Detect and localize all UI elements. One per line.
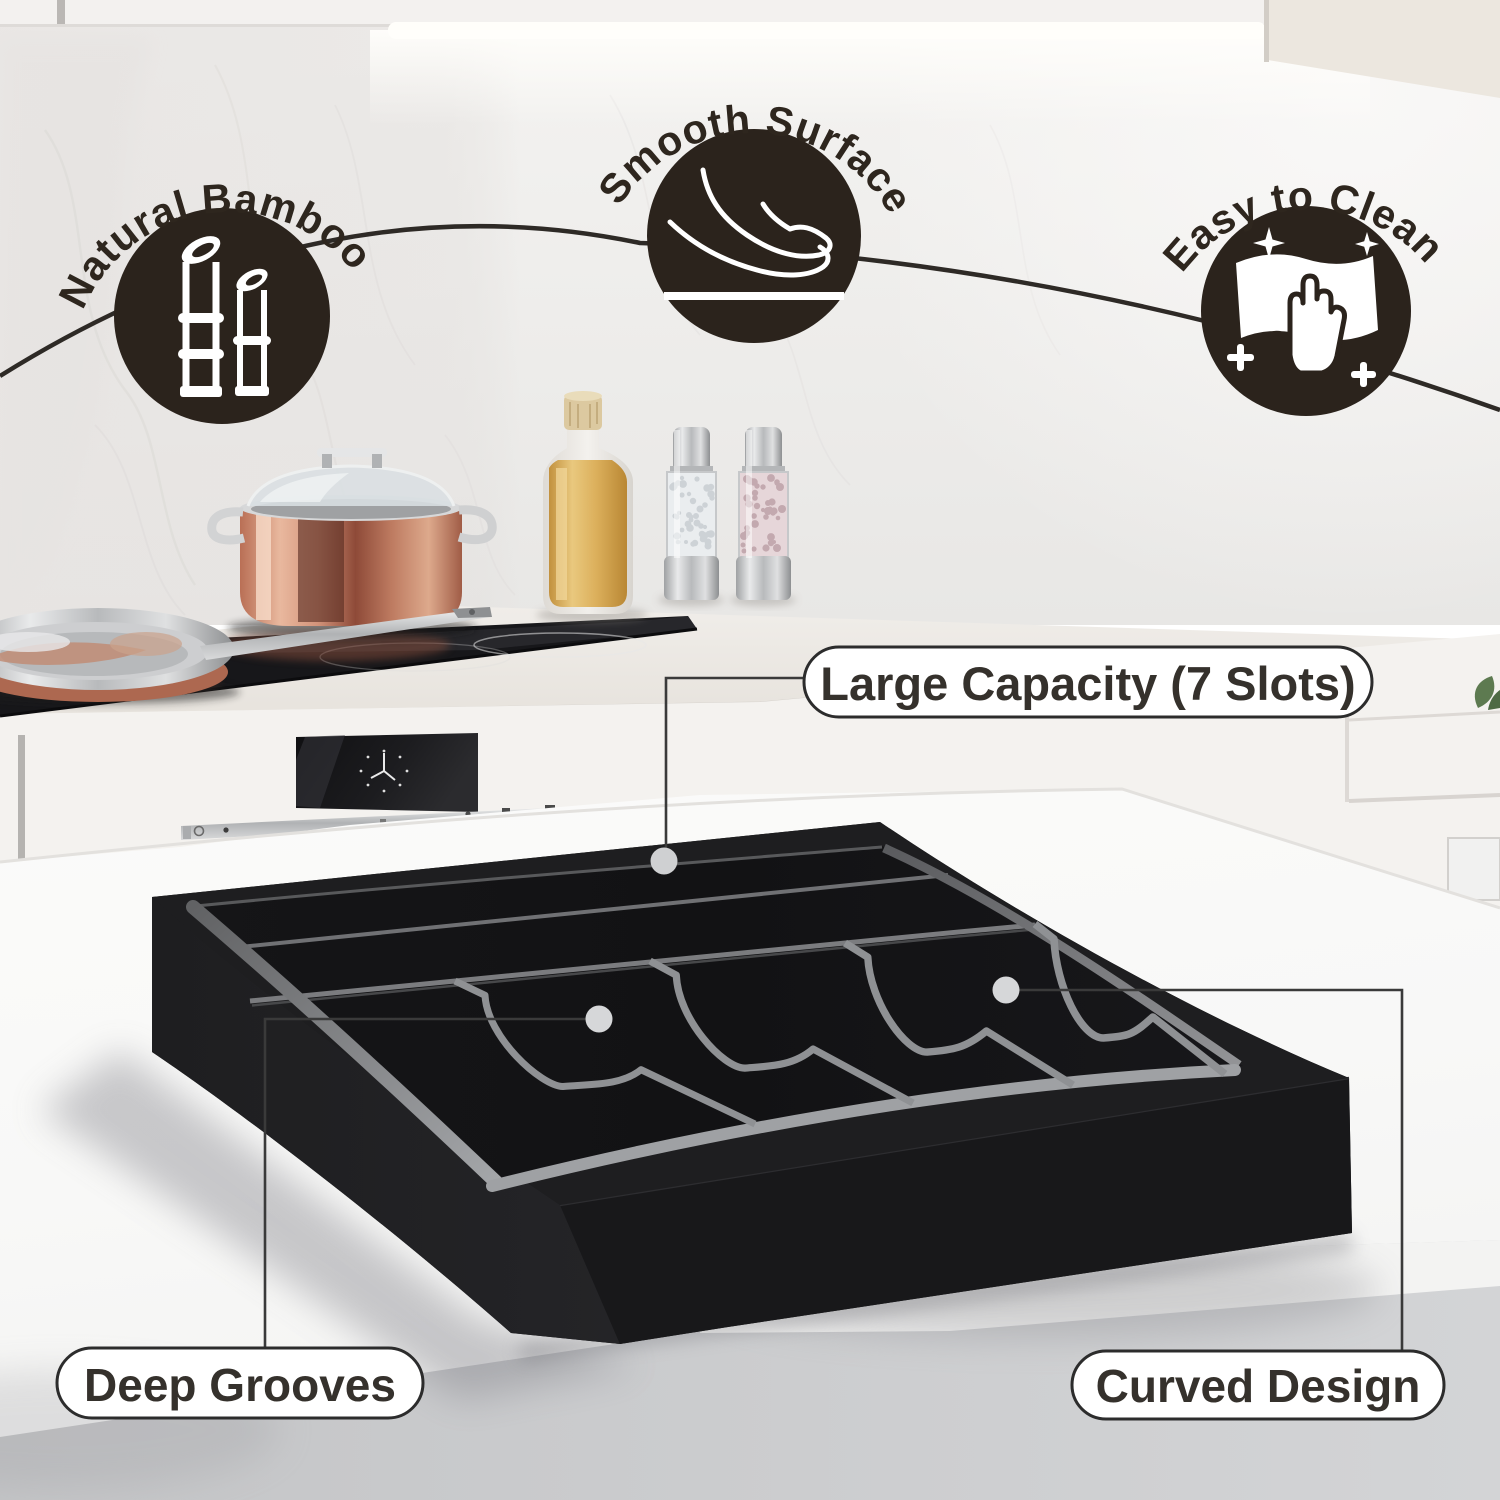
svg-text:Large Capacity (7 Slots): Large Capacity (7 Slots) bbox=[820, 657, 1355, 710]
svg-text:Deep Grooves: Deep Grooves bbox=[84, 1359, 396, 1411]
svg-text:Curved Design: Curved Design bbox=[1096, 1360, 1421, 1412]
